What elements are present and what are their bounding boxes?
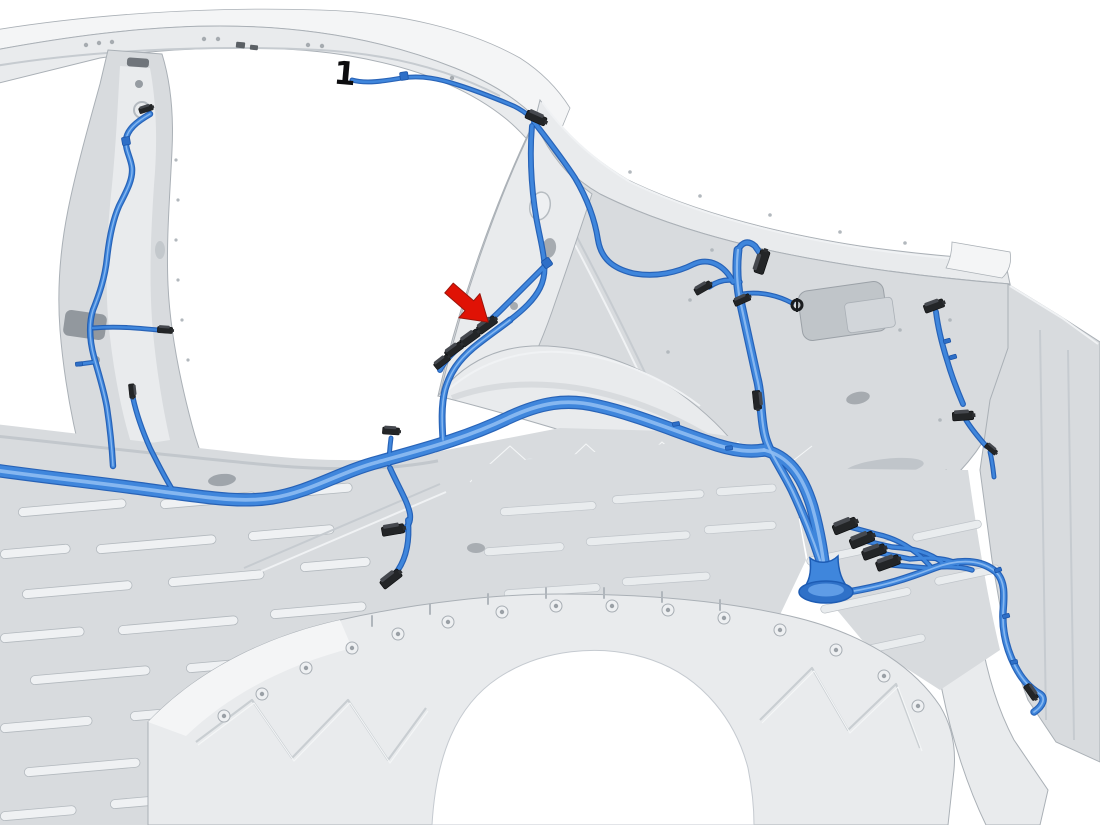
main-run-clip-1 xyxy=(672,421,680,426)
harness-routing-illustration: 1 xyxy=(0,0,1100,825)
rear-run-clip-3 xyxy=(1010,659,1018,664)
illustration-canvas: 1 xyxy=(0,0,1100,825)
b-pillar-clip xyxy=(121,136,130,145)
stub-end-clip xyxy=(75,362,82,367)
callout-1-label: 1 xyxy=(332,54,357,94)
quarter-opening-bracket xyxy=(844,297,896,333)
body-structure xyxy=(0,9,1100,825)
ring-terminal xyxy=(792,298,802,312)
roof-wire-clip xyxy=(399,71,408,80)
quarter-right-connector-mid xyxy=(952,409,976,421)
platform-oval-hole xyxy=(467,543,485,553)
floor-stub-connector xyxy=(382,425,401,435)
main-run-clip-2 xyxy=(725,446,732,451)
